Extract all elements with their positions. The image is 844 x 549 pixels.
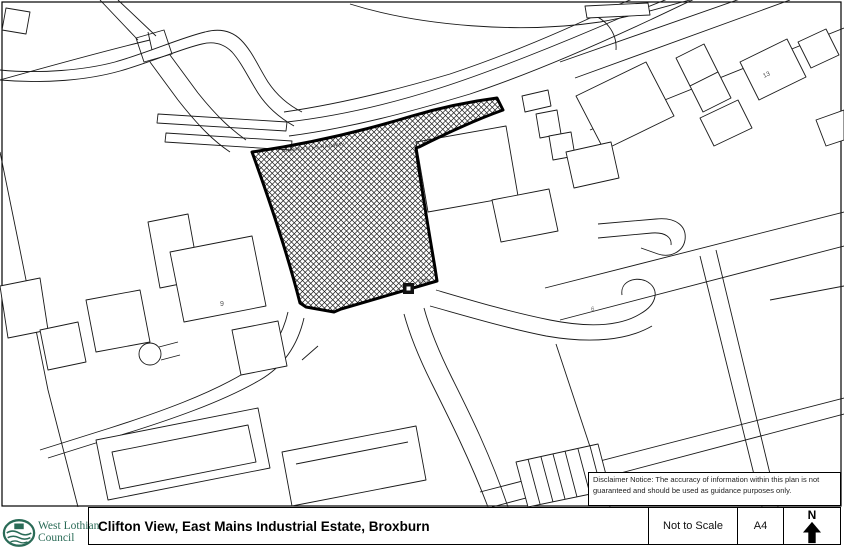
substation-marker-inner [407, 287, 411, 291]
council-logo: West Lothian Council [2, 512, 99, 549]
council-name-line2: Council [38, 533, 99, 545]
paper-size-box: A4 [737, 507, 784, 545]
north-arrow-icon [800, 521, 824, 544]
north-label: N [808, 509, 817, 521]
plan-title-box: Clifton View, East Mains Industrial Esta… [88, 507, 649, 545]
council-name: West Lothian Council [38, 521, 99, 544]
building-9-label: 9 [220, 301, 224, 308]
disclaimer-notice: Disclaimer Notice: The accuracy of infor… [588, 472, 841, 506]
site-plan-page: DISMANTLED RAILWAY 9 13 6 ESS Disclaimer… [0, 0, 844, 549]
paper-size: A4 [754, 520, 767, 532]
map-canvas: DISMANTLED RAILWAY 9 13 6 ESS [0, 0, 844, 507]
council-crest-icon [2, 515, 36, 549]
site-plan-drawing: DISMANTLED RAILWAY 9 13 6 ESS [0, 0, 844, 507]
scale-box: Not to Scale [648, 507, 738, 545]
council-name-line1: West Lothian [38, 521, 99, 533]
scale-note: Not to Scale [663, 520, 723, 532]
plan-title: Clifton View, East Mains Industrial Esta… [98, 519, 430, 534]
north-box: N [783, 507, 841, 545]
building-6-label: 6 [591, 307, 595, 313]
